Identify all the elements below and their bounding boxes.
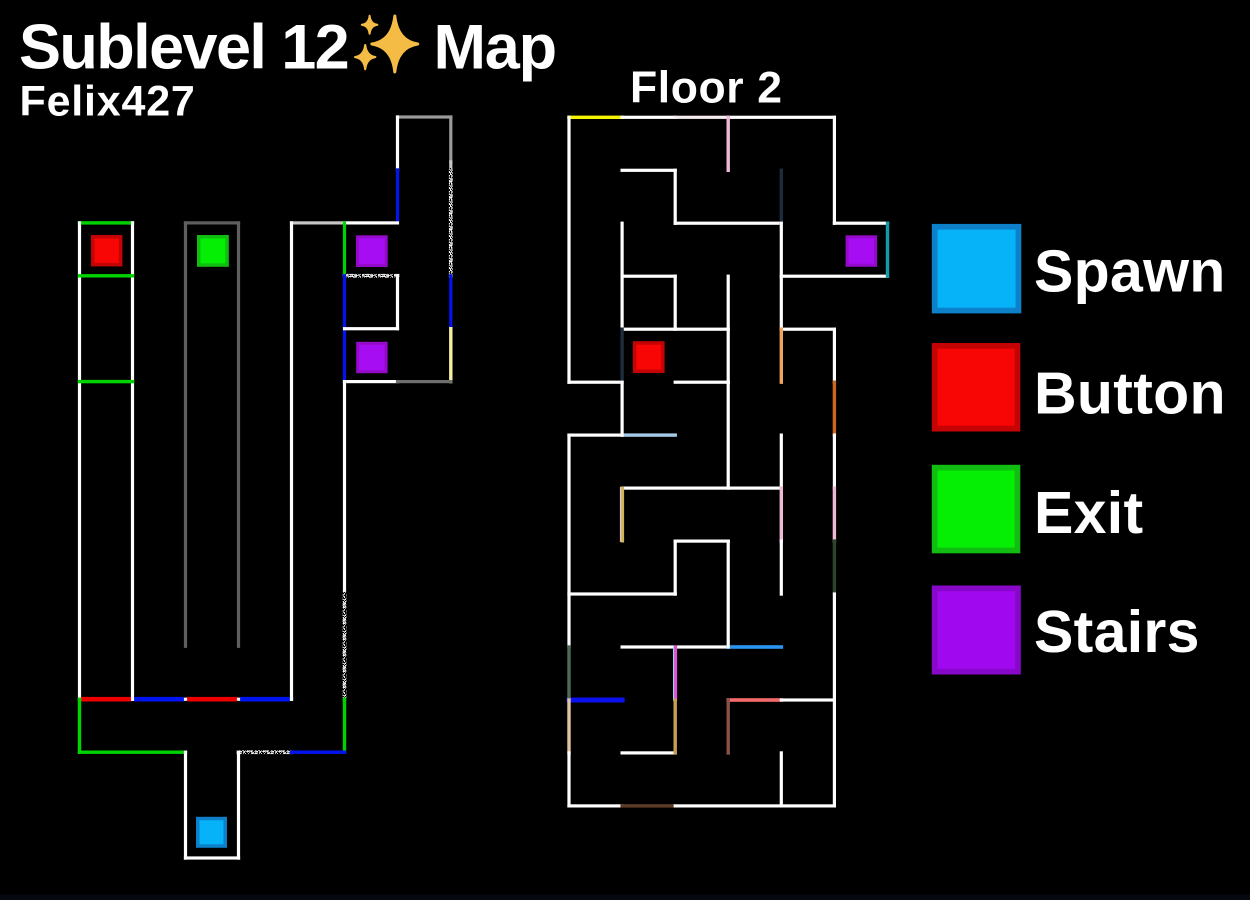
svg-text:Stairs: Stairs [1034,599,1200,665]
svg-text:Exit: Exit [1034,480,1143,546]
svg-text:Sublevel 12: Sublevel 12 [19,13,348,83]
svg-text:Button: Button [1034,361,1226,427]
svg-text:Floor 2: Floor 2 [630,64,783,113]
svg-text:Felix427: Felix427 [20,78,196,126]
svg-text:Map: Map [434,13,556,83]
svg-text:Spawn: Spawn [1034,239,1226,305]
